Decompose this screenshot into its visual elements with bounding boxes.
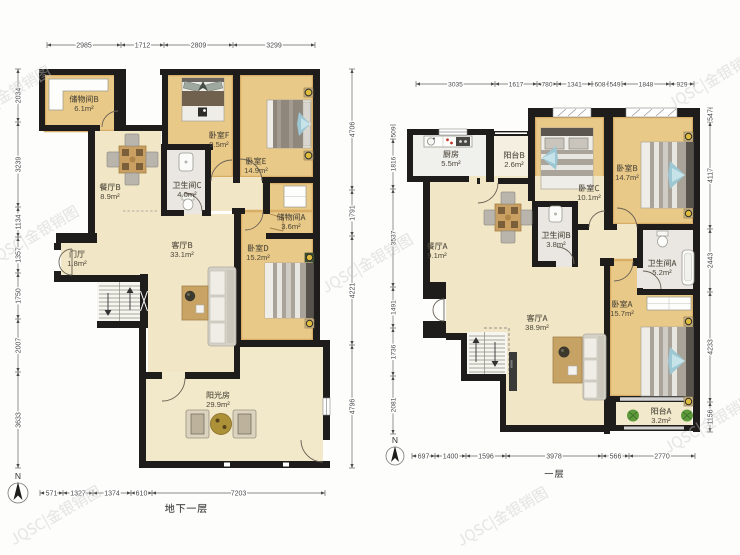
- svg-text:571: 571: [46, 490, 58, 497]
- svg-text:1712: 1712: [135, 42, 151, 49]
- svg-text:3.8m²: 3.8m²: [546, 240, 566, 249]
- svg-text:15.7m²: 15.7m²: [610, 309, 634, 318]
- svg-text:4706: 4706: [349, 122, 356, 138]
- svg-text:2985: 2985: [76, 42, 92, 49]
- svg-text:10.1m²: 10.1m²: [577, 193, 601, 202]
- svg-text:2007: 2007: [15, 338, 22, 354]
- svg-text:3035: 3035: [448, 81, 463, 88]
- svg-text:4233: 4233: [707, 339, 714, 355]
- svg-text:N: N: [15, 471, 21, 481]
- svg-text:608: 608: [594, 81, 605, 88]
- svg-text:2443: 2443: [707, 253, 714, 269]
- svg-text:1134: 1134: [15, 214, 22, 229]
- svg-text:8.9m²: 8.9m²: [100, 192, 120, 201]
- svg-text:566: 566: [610, 453, 622, 460]
- svg-text:9.1m²: 9.1m²: [427, 251, 447, 260]
- svg-text:2.6m²: 2.6m²: [504, 160, 524, 169]
- svg-text:1491: 1491: [390, 300, 397, 315]
- svg-text:4221: 4221: [349, 283, 356, 299]
- svg-text:610: 610: [136, 490, 148, 497]
- svg-text:1.8m²: 1.8m²: [67, 259, 87, 268]
- svg-text:9.5m²: 9.5m²: [209, 140, 229, 149]
- svg-text:3.2m²: 3.2m²: [651, 416, 671, 425]
- svg-text:1791: 1791: [349, 205, 356, 221]
- svg-text:549: 549: [609, 81, 620, 88]
- svg-text:1617: 1617: [509, 81, 524, 88]
- svg-text:3299: 3299: [266, 42, 282, 49]
- svg-text:29.9m²: 29.9m²: [206, 400, 230, 409]
- svg-text:929: 929: [676, 81, 687, 88]
- svg-text:33.1m²: 33.1m²: [170, 250, 194, 259]
- svg-text:3633: 3633: [15, 412, 22, 428]
- svg-text:1357: 1357: [15, 247, 22, 263]
- svg-text:2809: 2809: [191, 42, 207, 49]
- svg-text:4796: 4796: [349, 399, 356, 415]
- svg-text:1374: 1374: [104, 490, 120, 497]
- svg-text:5.2m²: 5.2m²: [652, 268, 672, 277]
- svg-text:1341: 1341: [567, 81, 582, 88]
- svg-text:N: N: [392, 435, 398, 445]
- svg-text:1750: 1750: [15, 288, 22, 304]
- svg-text:38.9m²: 38.9m²: [525, 323, 549, 332]
- svg-text:3239: 3239: [15, 157, 22, 173]
- svg-text:5.5m²: 5.5m²: [441, 159, 461, 168]
- svg-text:2081: 2081: [390, 397, 397, 412]
- svg-text:1400: 1400: [443, 453, 459, 460]
- svg-text:509: 509: [390, 126, 397, 137]
- svg-text:1816: 1816: [390, 156, 397, 171]
- svg-text:547: 547: [707, 109, 714, 121]
- svg-text:14.9m²: 14.9m²: [244, 166, 268, 175]
- svg-text:780: 780: [541, 81, 552, 88]
- svg-text:2770: 2770: [654, 453, 670, 460]
- svg-text:1736: 1736: [390, 344, 397, 359]
- svg-text:15.2m²: 15.2m²: [246, 253, 270, 262]
- svg-text:3978: 3978: [546, 453, 562, 460]
- svg-text:6.1m²: 6.1m²: [74, 104, 94, 113]
- svg-text:1848: 1848: [639, 81, 654, 88]
- svg-text:7203: 7203: [231, 490, 247, 497]
- svg-text:4117: 4117: [707, 168, 714, 183]
- svg-text:14.7m²: 14.7m²: [615, 173, 639, 182]
- svg-text:4.0m²: 4.0m²: [177, 190, 197, 199]
- svg-text:3.6m²: 3.6m²: [281, 222, 301, 231]
- svg-text:697: 697: [418, 453, 430, 460]
- svg-text:1596: 1596: [478, 453, 494, 460]
